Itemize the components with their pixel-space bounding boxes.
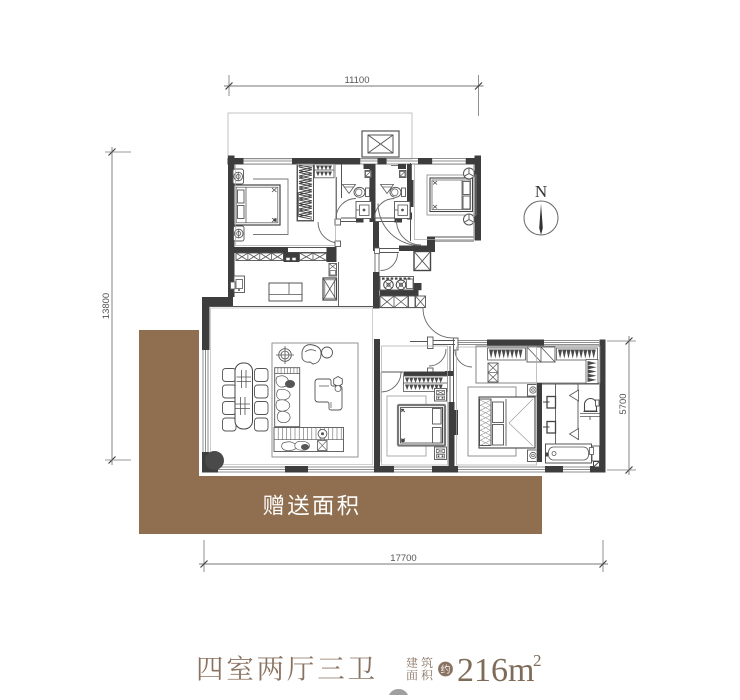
- svg-text:11100: 11100: [344, 75, 369, 86]
- svg-text:2: 2: [533, 651, 542, 670]
- svg-text:13800: 13800: [101, 293, 112, 319]
- svg-text:N: N: [535, 182, 547, 201]
- svg-text:216m: 216m: [457, 652, 534, 689]
- svg-text:5700: 5700: [618, 393, 629, 414]
- svg-text:17700: 17700: [390, 553, 416, 564]
